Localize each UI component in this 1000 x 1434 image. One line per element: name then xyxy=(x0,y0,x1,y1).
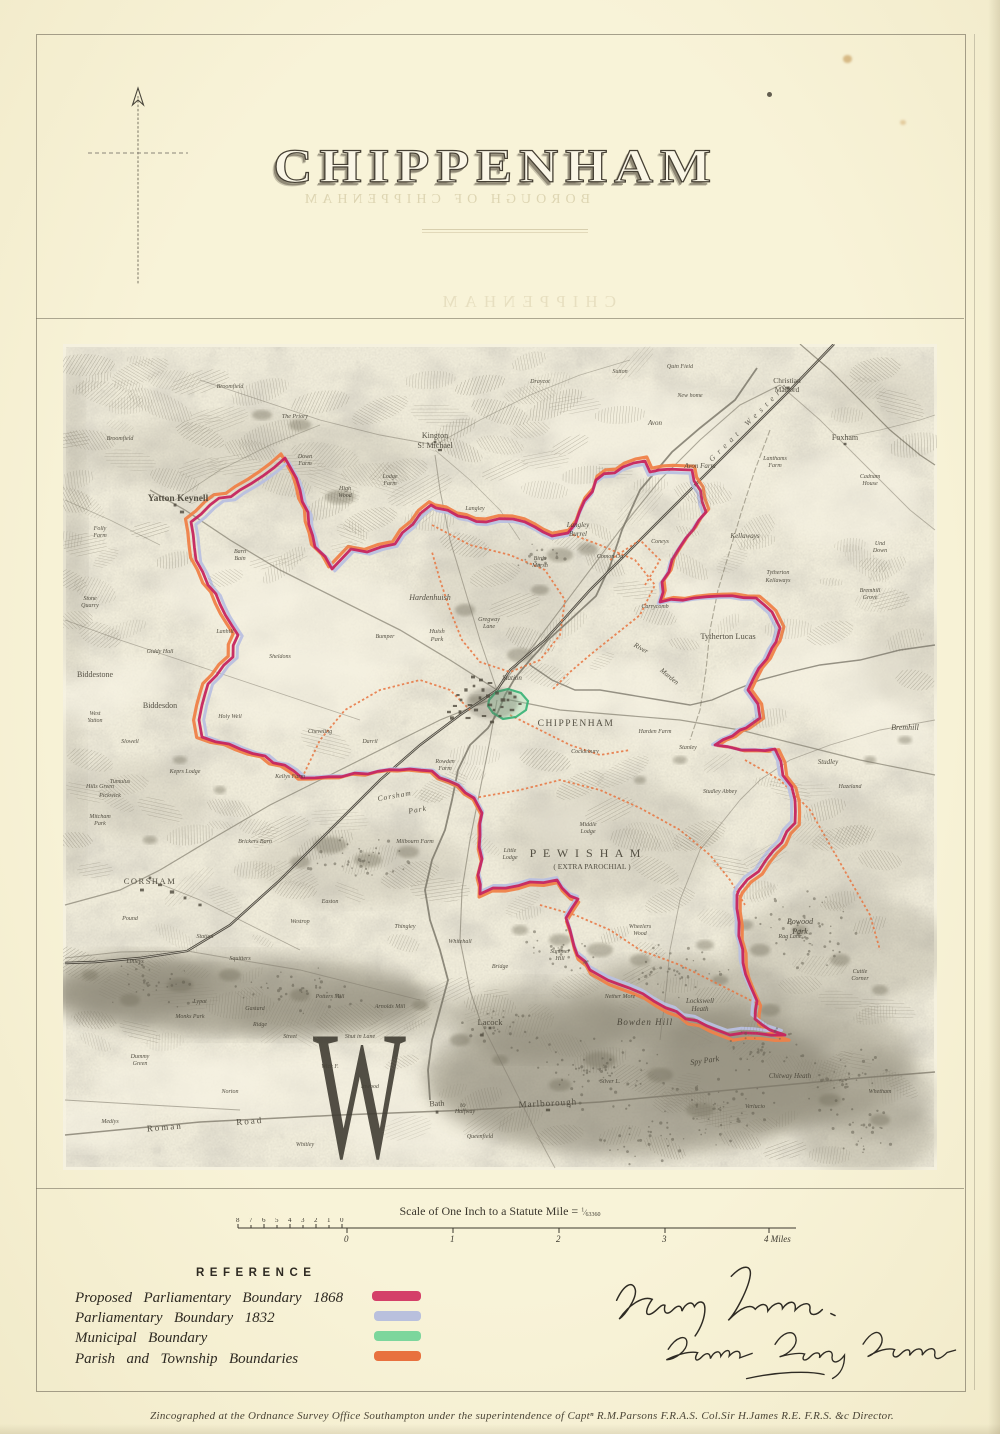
svg-text:Easton: Easton xyxy=(321,899,339,905)
svg-text:7: 7 xyxy=(249,1218,253,1224)
svg-text:Pound: Pound xyxy=(121,916,139,922)
svg-text:Studley: Studley xyxy=(818,758,839,766)
svg-text:Bath: Bath xyxy=(429,1099,445,1109)
svg-text:Halfway: Halfway xyxy=(454,1108,476,1115)
svg-text:Linleys: Linleys xyxy=(125,959,144,965)
svg-text:Quarry: Quarry xyxy=(81,603,99,609)
svg-text:Gregway: Gregway xyxy=(478,617,500,623)
svg-text:Potters Mill: Potters Mill xyxy=(315,994,345,1000)
svg-text:Langley: Langley xyxy=(566,521,590,529)
svg-text:Corner: Corner xyxy=(851,976,869,982)
svg-text:Shut in Lane: Shut in Lane xyxy=(345,1034,376,1040)
svg-text:Marsh: Marsh xyxy=(531,563,548,569)
svg-text:Bridge: Bridge xyxy=(492,964,509,970)
svg-text:Nether More: Nether More xyxy=(604,994,636,1000)
svg-text:Langley: Langley xyxy=(464,506,485,512)
svg-text:( EXTRA PAROCHIAL ): ( EXTRA PAROCHIAL ) xyxy=(553,862,631,871)
svg-text:Station: Station xyxy=(196,934,213,940)
svg-text:Chitway Heath: Chitway Heath xyxy=(769,1072,812,1080)
svg-text:Draycot: Draycot xyxy=(529,379,550,385)
svg-text:Lodge: Lodge xyxy=(382,474,398,480)
svg-text:Thingley: Thingley xyxy=(395,924,416,930)
svg-text:Broomfield: Broomfield xyxy=(107,435,135,442)
svg-text:Tytherton Lucas: Tytherton Lucas xyxy=(700,631,755,641)
svg-text:Green: Green xyxy=(133,1061,148,1067)
svg-text:Little: Little xyxy=(503,848,517,854)
svg-text:Stone: Stone xyxy=(83,596,97,602)
svg-text:6: 6 xyxy=(262,1218,266,1224)
svg-text:Holy Well: Holy Well xyxy=(217,714,242,720)
svg-text:Wood: Wood xyxy=(633,931,647,937)
svg-text:Foxham: Foxham xyxy=(832,433,859,442)
svg-text:Medlys: Medlys xyxy=(100,1119,119,1125)
svg-text:Birds: Birds xyxy=(534,556,547,562)
svg-text:Farm: Farm xyxy=(297,461,312,467)
svg-text:Tytherton: Tytherton xyxy=(767,570,790,576)
svg-text:Gastard: Gastard xyxy=(245,1006,265,1012)
svg-text:1: 1 xyxy=(327,1218,331,1224)
svg-text:Cocklebury: Cocklebury xyxy=(571,749,599,755)
svg-text:Park: Park xyxy=(430,636,444,643)
svg-text:3: 3 xyxy=(301,1218,305,1224)
svg-text:Queenfield: Queenfield xyxy=(467,1133,494,1140)
svg-text:Kellys Farm: Kellys Farm xyxy=(274,774,305,780)
svg-text:Broomfield: Broomfield xyxy=(217,383,245,390)
svg-text:Hills Green: Hills Green xyxy=(85,784,114,790)
svg-text:Slowell: Slowell xyxy=(121,739,139,745)
svg-text:Und: Und xyxy=(875,541,886,547)
svg-text:Wheelers: Wheelers xyxy=(629,924,652,930)
svg-text:Keprs Lodge: Keprs Lodge xyxy=(169,769,201,775)
svg-text:P E W I S H A M: P E W I S H A M xyxy=(530,846,643,860)
svg-text:Bain: Bain xyxy=(234,556,245,562)
svg-text:Sheldons: Sheldons xyxy=(269,654,291,660)
svg-text:0: 0 xyxy=(340,1218,344,1224)
svg-text:Farm: Farm xyxy=(767,463,782,469)
svg-text:Farm: Farm xyxy=(437,766,452,772)
svg-text:Studley Abbey: Studley Abbey xyxy=(703,789,737,795)
svg-text:to: to xyxy=(460,1101,466,1109)
svg-text:Arnolds Mill: Arnolds Mill xyxy=(374,1004,406,1010)
svg-text:Station: Station xyxy=(502,674,522,682)
svg-text:3: 3 xyxy=(661,1234,667,1244)
svg-text:Stanley: Stanley xyxy=(679,745,697,751)
svg-text:Brickers Barn: Brickers Barn xyxy=(238,839,272,845)
svg-text:Lacock: Lacock xyxy=(477,1017,503,1027)
svg-text:8: 8 xyxy=(236,1218,240,1224)
svg-text:Lanhill: Lanhill xyxy=(215,629,234,635)
svg-text:Verlucio: Verlucio xyxy=(745,1104,765,1110)
svg-text:Lockswell: Lockswell xyxy=(685,997,714,1005)
svg-text:Mitcham: Mitcham xyxy=(88,814,111,820)
svg-text:Cuttle: Cuttle xyxy=(853,969,868,975)
svg-text:Silver L.: Silver L. xyxy=(600,1079,620,1085)
svg-text:Kellaways: Kellaways xyxy=(765,578,792,584)
svg-text:Farm: Farm xyxy=(382,481,397,487)
svg-text:Coneys: Coneys xyxy=(651,539,669,545)
svg-text:Pickwick: Pickwick xyxy=(98,793,121,799)
svg-text:Bowood: Bowood xyxy=(787,917,814,926)
svg-text:CHIPPENHAM: CHIPPENHAM xyxy=(538,719,615,729)
svg-text:Wood: Wood xyxy=(338,493,352,499)
svg-text:High: High xyxy=(338,486,351,492)
svg-text:Kington: Kington xyxy=(422,431,448,440)
svg-text:Avon: Avon xyxy=(647,419,662,427)
svg-text:Westrop: Westrop xyxy=(290,919,309,925)
svg-text:Bumper: Bumper xyxy=(376,634,396,640)
svg-text:0: 0 xyxy=(344,1234,349,1244)
svg-text:Park: Park xyxy=(93,821,106,827)
svg-text:Hazeland: Hazeland xyxy=(838,784,863,790)
svg-text:Yatton Keynell: Yatton Keynell xyxy=(148,494,209,504)
svg-text:West: West xyxy=(89,711,100,717)
svg-text:Norton: Norton xyxy=(220,1089,238,1095)
svg-text:Lodge: Lodge xyxy=(502,855,518,861)
svg-text:2: 2 xyxy=(556,1234,561,1244)
svg-text:Cadnam: Cadnam xyxy=(860,474,881,480)
svg-text:Comon On: Comon On xyxy=(597,554,623,560)
svg-text:Lypat: Lypat xyxy=(192,999,207,1005)
svg-text:Grove: Grove xyxy=(863,595,878,601)
svg-text:Quin Field: Quin Field xyxy=(667,364,694,370)
svg-text:Monks Park: Monks Park xyxy=(174,1014,204,1020)
svg-text:Whitley: Whitley xyxy=(296,1142,315,1148)
svg-text:Wick F.: Wick F. xyxy=(321,1064,339,1070)
svg-text:Avon Farm: Avon Farm xyxy=(683,462,715,470)
svg-text:Inwood: Inwood xyxy=(360,1084,380,1090)
svg-text:New home: New home xyxy=(676,393,703,399)
svg-text:Street: Street xyxy=(283,1034,297,1040)
svg-text:Huish: Huish xyxy=(428,628,445,635)
svg-text:House: House xyxy=(861,481,878,487)
svg-text:Lanthams: Lanthams xyxy=(762,456,787,462)
svg-text:Folly: Folly xyxy=(93,526,107,532)
svg-text:Harden Farm: Harden Farm xyxy=(638,729,673,735)
svg-text:Heath: Heath xyxy=(690,1005,709,1013)
svg-text:Biddestone: Biddestone xyxy=(77,670,113,679)
svg-text:The Priory: The Priory xyxy=(282,414,309,420)
svg-text:Ridge: Ridge xyxy=(252,1022,267,1028)
svg-text:Lodge: Lodge xyxy=(580,829,596,835)
svg-text:Dummy: Dummy xyxy=(130,1054,150,1060)
svg-text:Biddesdon: Biddesdon xyxy=(143,701,177,710)
svg-text:Kellaways: Kellaways xyxy=(729,532,759,540)
svg-text:Down: Down xyxy=(297,454,312,460)
svg-text:Lane: Lane xyxy=(482,624,495,630)
svg-text:Summer: Summer xyxy=(550,949,570,955)
svg-text:Sutton: Sutton xyxy=(612,369,627,375)
svg-text:Squitters: Squitters xyxy=(229,956,251,962)
svg-text:Bowden Hill: Bowden Hill xyxy=(617,1017,673,1027)
svg-text:Carrycomb: Carrycomb xyxy=(641,604,668,610)
svg-text:Cheveling: Cheveling xyxy=(308,729,332,735)
svg-text:Hill: Hill xyxy=(554,956,565,962)
svg-text:5: 5 xyxy=(275,1218,279,1224)
svg-text:Rowden: Rowden xyxy=(434,759,454,765)
svg-text:4 Miles: 4 Miles xyxy=(764,1234,791,1244)
svg-text:Rag Lane: Rag Lane xyxy=(777,934,802,940)
svg-text:1: 1 xyxy=(450,1234,455,1244)
svg-text:Milbourn Farm: Milbourn Farm xyxy=(395,839,434,845)
svg-text:Down: Down xyxy=(872,548,887,554)
svg-text:2: 2 xyxy=(314,1218,318,1224)
svg-text:Hardenhuish: Hardenhuish xyxy=(408,593,450,602)
svg-text:Darril: Darril xyxy=(361,739,378,745)
svg-text:Middle: Middle xyxy=(579,822,597,828)
svg-text:Barn: Barn xyxy=(234,549,246,555)
svg-text:Bremhill: Bremhill xyxy=(891,723,919,732)
svg-text:Burrel: Burrel xyxy=(569,530,587,538)
svg-text:Whitehall: Whitehall xyxy=(448,939,472,945)
svg-text:4: 4 xyxy=(288,1218,292,1224)
svg-text:Bremhill: Bremhill xyxy=(860,588,881,594)
svg-text:Farm: Farm xyxy=(92,533,107,539)
svg-text:Whetham: Whetham xyxy=(869,1089,892,1095)
svg-text:Yatton: Yatton xyxy=(87,718,102,724)
svg-text:Giddy Hall: Giddy Hall xyxy=(147,649,174,655)
